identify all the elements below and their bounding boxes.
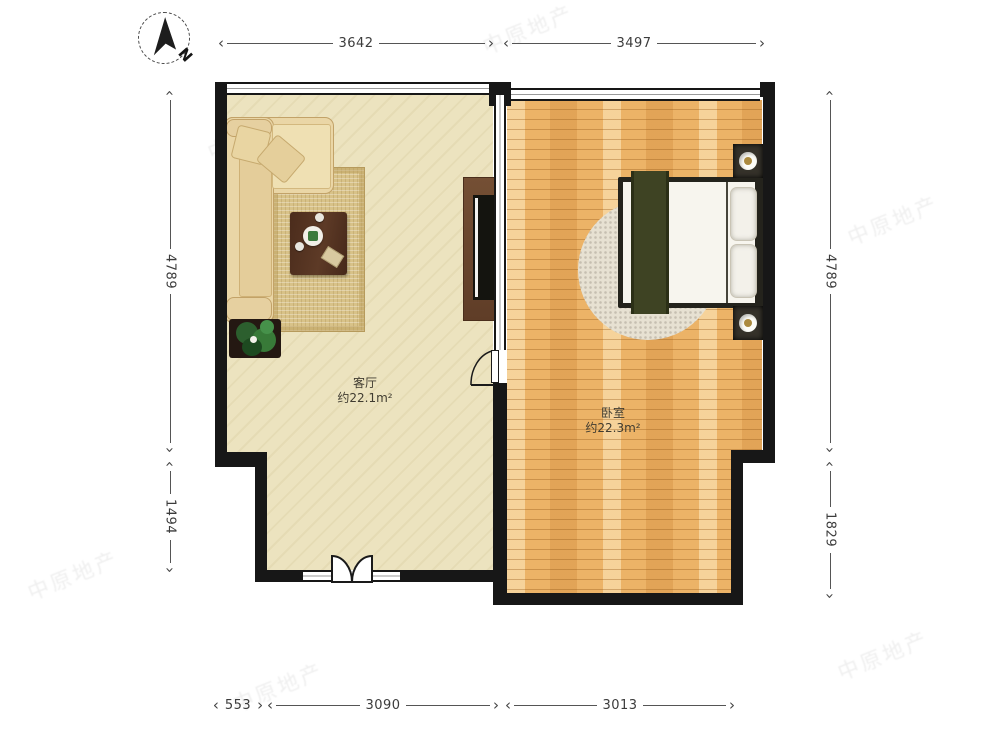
- arrow-left-icon: ‹: [264, 698, 276, 712]
- arrow-left-icon: ‹: [212, 698, 220, 712]
- nightstand-top: [733, 144, 763, 178]
- dimension-right-lower: ‹ 1829 ›: [821, 457, 839, 603]
- arrow-left-icon: ‹: [500, 36, 512, 50]
- arrow-down-icon: ›: [823, 444, 837, 456]
- dimension-value: 1494: [163, 494, 178, 539]
- dimension-bottom-living: ‹ 3090 ›: [264, 696, 502, 714]
- dimension-top-bedroom: ‹ 3497 ›: [500, 34, 768, 52]
- arrow-right-icon: ›: [726, 698, 738, 712]
- plant-center: [250, 336, 257, 343]
- arrow-down-icon: ›: [163, 444, 177, 456]
- room-name: 卧室: [553, 406, 673, 421]
- watermark: 中原地产: [843, 188, 943, 252]
- room-label-bedroom: 卧室 约22.3m²: [553, 406, 673, 436]
- room-label-living: 客厅 约22.1m²: [305, 376, 425, 406]
- wall-left: [215, 82, 227, 467]
- cup: [315, 213, 324, 222]
- room-name: 客厅: [305, 376, 425, 391]
- watermark: 中原地产: [833, 623, 933, 687]
- entry-double-door: [329, 552, 375, 584]
- arrow-down-icon: ›: [163, 564, 177, 576]
- lamp-icon: [739, 314, 757, 332]
- bed-runner-blanket: [631, 171, 669, 314]
- nightstand-bottom: [733, 306, 763, 340]
- room-area: 约22.1m²: [305, 391, 425, 406]
- bed-pillow: [730, 244, 757, 298]
- dimension-value: 553: [220, 698, 256, 713]
- wall-corner-top-right: [760, 82, 775, 97]
- dimension-value: 3642: [333, 36, 378, 51]
- plate: [303, 226, 323, 246]
- wall-right: [763, 82, 775, 463]
- plate-food: [308, 231, 318, 241]
- bed-headboard-line: [726, 182, 728, 303]
- arrow-left-icon: ‹: [502, 698, 514, 712]
- floor-plan-canvas: 中原地产 中原地产 中原地产 中原地产 中原地产 中原地产 N ‹ 3642 ›…: [0, 0, 1000, 750]
- tv-screen: [475, 198, 478, 297]
- wall-bottom-living-left: [255, 570, 303, 582]
- arrow-up-icon: ‹: [163, 458, 177, 470]
- dimension-left-lower: ‹ 1494 ›: [161, 457, 179, 577]
- room-area: 约22.3m²: [553, 421, 673, 436]
- dimension-bottom-notch: ‹ 553 ›: [212, 696, 264, 714]
- dimension-value: 4789: [163, 249, 178, 294]
- arrow-up-icon: ‹: [823, 87, 837, 99]
- lamp-icon: [739, 152, 757, 170]
- wall-right-lower: [731, 450, 743, 605]
- arrow-right-icon: ›: [256, 698, 264, 712]
- dimension-top-living: ‹ 3642 ›: [215, 34, 497, 52]
- lamp-core: [744, 319, 752, 327]
- arrow-right-icon: ›: [490, 698, 502, 712]
- arrow-right-icon: ›: [756, 36, 768, 50]
- arrow-up-icon: ‹: [163, 87, 177, 99]
- window-top-bedroom: [511, 88, 760, 101]
- window-top-living: [227, 82, 489, 95]
- plant-leaf: [260, 320, 274, 334]
- interior-door-arc: [464, 346, 502, 388]
- bed-pillow: [730, 187, 757, 241]
- dimension-value: 4789: [823, 249, 838, 294]
- dimension-right-upper: ‹ 4789 ›: [821, 86, 839, 457]
- window-entry-right: [371, 570, 400, 582]
- arrow-right-icon: ›: [485, 36, 497, 50]
- lamp-core: [744, 157, 752, 165]
- wall-divider-lower: [493, 383, 507, 605]
- dimension-value: 3090: [360, 698, 405, 713]
- dimension-left-upper: ‹ 4789 ›: [161, 86, 179, 457]
- door-leaf-left: [332, 556, 352, 582]
- arrow-up-icon: ‹: [823, 458, 837, 470]
- wall-left-lower: [255, 452, 267, 582]
- arrow-left-icon: ‹: [215, 36, 227, 50]
- wall-bottom-bedroom: [493, 593, 743, 605]
- door-leaf-right: [352, 556, 372, 582]
- watermark: 中原地产: [23, 543, 123, 607]
- wall-corner-top-left: [215, 82, 227, 97]
- arrow-down-icon: ›: [823, 590, 837, 602]
- sofa-armrest-bottom: [226, 297, 272, 321]
- dimension-value: 3013: [597, 698, 642, 713]
- north-compass: N: [133, 8, 205, 74]
- dimension-value: 3497: [611, 36, 656, 51]
- sofa-seat-cushions: [239, 150, 272, 297]
- dimension-value: 1829: [823, 507, 838, 552]
- dimension-bottom-bedroom: ‹ 3013 ›: [502, 696, 738, 714]
- wall-bottom-living-right: [400, 570, 497, 582]
- partition-wall-window: [494, 95, 506, 350]
- cup: [295, 242, 304, 251]
